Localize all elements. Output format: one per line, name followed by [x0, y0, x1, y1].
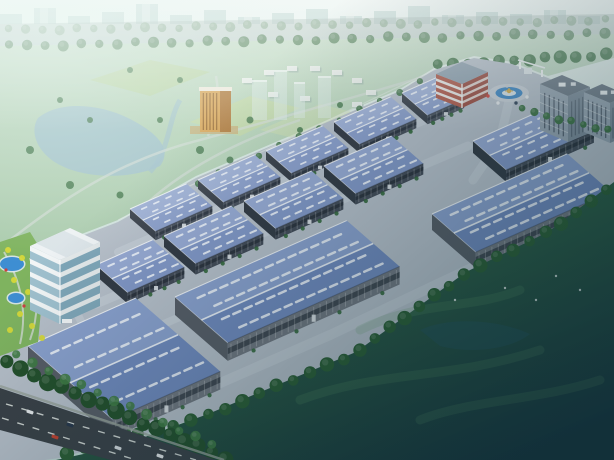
bottom-right-teal-overlay	[0, 0, 614, 460]
aerial-rendering-canvas	[0, 0, 614, 460]
industrial-park-rendering	[0, 0, 614, 460]
